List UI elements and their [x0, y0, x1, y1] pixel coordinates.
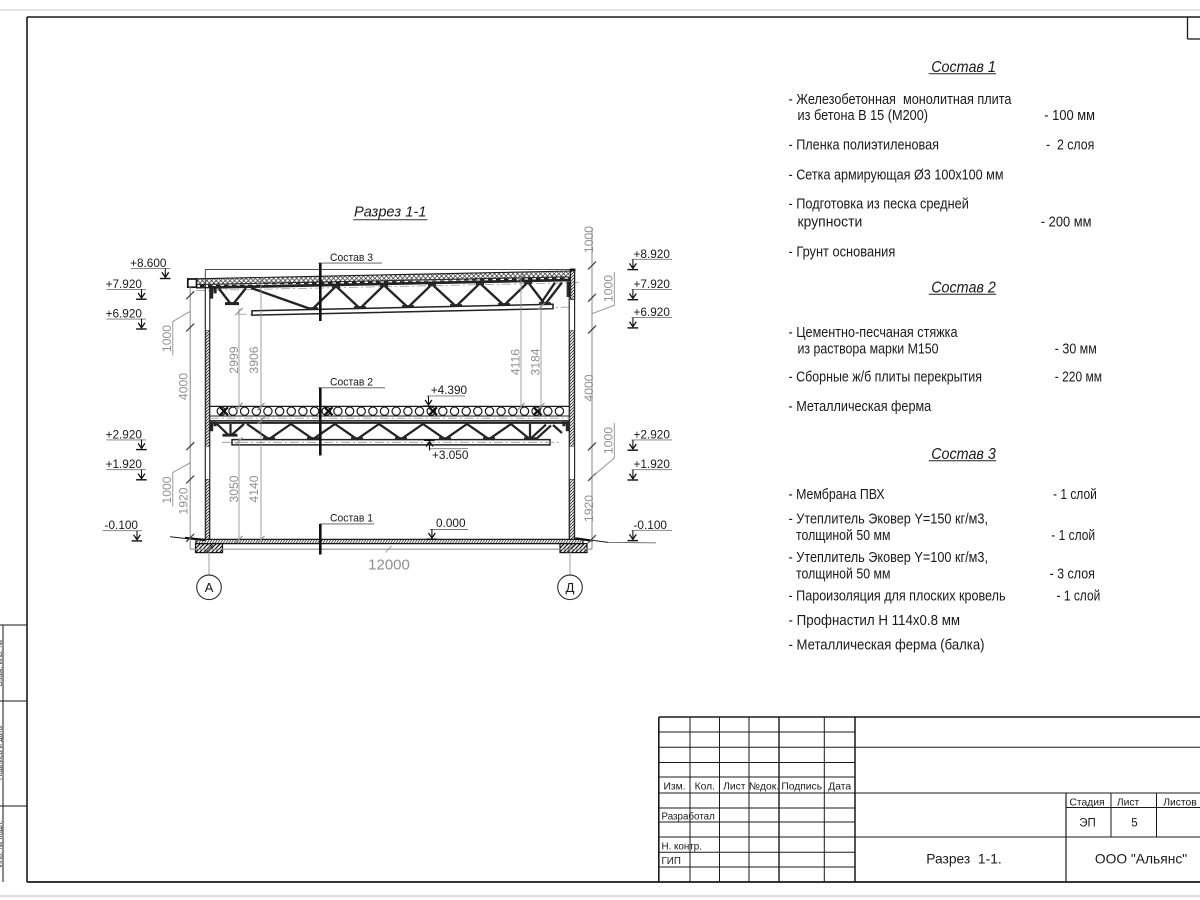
svg-text:Д: Д: [566, 580, 575, 595]
svg-text:0.000: 0.000: [436, 516, 466, 530]
svg-text:Разрез 1-1.: Разрез 1-1.: [926, 852, 1001, 867]
svg-text:- Сетка армирующая Ø3 100х100: - Сетка армирующая Ø3 100х100 мм: [789, 166, 1004, 183]
svg-text:1000: 1000: [582, 226, 596, 253]
svg-text:4116: 4116: [508, 349, 522, 375]
svg-text:- 200 мм: - 200 мм: [1041, 214, 1092, 231]
svg-text:Изм.: Изм.: [663, 781, 685, 792]
svg-text:- Мембрана ПВХ: - Мембрана ПВХ: [789, 486, 885, 503]
svg-text:Кол.: Кол.: [695, 781, 715, 792]
svg-text:- Сборные ж/б плиты перекрытия: - Сборные ж/б плиты перекрытия: [789, 368, 983, 385]
svg-text:- Утеплитель Эковер Y=150 кг/м: - Утеплитель Эковер Y=150 кг/м3,: [789, 510, 989, 527]
svg-text:- 1 слой: - 1 слой: [1051, 527, 1095, 544]
svg-text:+8.920: +8.920: [634, 247, 671, 261]
svg-text:1000: 1000: [160, 476, 174, 503]
svg-text:-0.100: -0.100: [105, 518, 139, 532]
svg-text:+7.920: +7.920: [634, 277, 671, 291]
svg-text:Стадия: Стадия: [1069, 797, 1104, 808]
svg-text:4140: 4140: [247, 475, 261, 502]
svg-text:+3.050: +3.050: [432, 448, 469, 462]
svg-text:ЭП: ЭП: [1079, 818, 1096, 830]
svg-text:Дата: Дата: [828, 781, 851, 792]
svg-text:1000: 1000: [160, 325, 174, 352]
svg-text:- 1 слой: - 1 слой: [1057, 587, 1101, 604]
svg-text:Состав 3: Состав 3: [330, 252, 373, 264]
svg-text:Лист: Лист: [1117, 797, 1140, 808]
svg-text:- 220 мм: - 220 мм: [1055, 368, 1102, 385]
svg-text:- Цементно-песчаная стяжка: - Цементно-песчаная стяжка: [789, 324, 958, 341]
svg-text:3184: 3184: [528, 348, 542, 375]
svg-text:+6.920: +6.920: [634, 305, 671, 319]
svg-text:из бетона В 15 (М200): из бетона В 15 (М200): [798, 107, 929, 124]
svg-text:толщиной 50 мм: толщиной 50 мм: [796, 565, 891, 582]
svg-text:+6.920: +6.920: [106, 307, 143, 321]
svg-text:Разрез 1-1: Разрез 1-1: [354, 205, 426, 221]
svg-text:- Профнастил Н 114х0.8 мм: - Профнастил Н 114х0.8 мм: [789, 612, 961, 629]
svg-text:+8.600: +8.600: [130, 256, 167, 270]
svg-text:- 30 мм: - 30 мм: [1055, 340, 1097, 357]
svg-text:-0.100: -0.100: [634, 518, 668, 532]
svg-text:1920: 1920: [582, 495, 596, 522]
svg-text:4000: 4000: [176, 373, 190, 400]
svg-text:- 1 слой: - 1 слой: [1053, 486, 1097, 503]
svg-text:Состав 2: Состав 2: [330, 377, 373, 389]
svg-text:Н. контр.: Н. контр.: [662, 841, 702, 852]
svg-text:А: А: [205, 580, 214, 595]
svg-text:5: 5: [1131, 818, 1137, 830]
svg-text:+1.920: +1.920: [106, 457, 143, 471]
svg-text:- Пленка полиэтиленовая: - Пленка полиэтиленовая: [789, 137, 940, 154]
svg-text:- Железобетонная монолитная п: - Железобетонная монолитная плита: [789, 91, 1012, 108]
svg-text:12000: 12000: [368, 557, 410, 574]
svg-text:- 3 слоя: - 3 слоя: [1050, 565, 1095, 582]
svg-text:Подпись и дата: Подпись и дата: [0, 725, 4, 780]
svg-text:ГИП: ГИП: [662, 856, 681, 867]
svg-text:Состав 1: Состав 1: [330, 513, 373, 525]
svg-text:ООО "Альянс": ООО "Альянс": [1095, 852, 1187, 867]
svg-text:- Подготовка из песка средней: - Подготовка из песка средней: [789, 195, 969, 212]
svg-text:+2.920: +2.920: [634, 427, 671, 441]
svg-text:- Пароизоляция для плоских кро: - Пароизоляция для плоских кровель: [789, 587, 1006, 604]
svg-text:+7.920: +7.920: [106, 277, 143, 291]
svg-text:3050: 3050: [227, 475, 241, 502]
svg-text:Подпись: Подпись: [781, 781, 822, 792]
svg-text:- Металлическая ферма (балка): - Металлическая ферма (балка): [789, 636, 985, 653]
svg-text:+4.390: +4.390: [431, 383, 468, 397]
svg-text:2999: 2999: [227, 346, 241, 373]
svg-text:- Утеплитель Эковер Y=100 кг/м: - Утеплитель Эковер Y=100 кг/м3,: [789, 549, 989, 566]
svg-text:1000: 1000: [601, 427, 615, 454]
svg-text:- Металлическая ферма: - Металлическая ферма: [789, 398, 932, 415]
svg-text:Разработал: Разработал: [662, 812, 716, 823]
svg-text:1920: 1920: [176, 487, 190, 514]
svg-text:Листов: Листов: [1163, 797, 1197, 808]
svg-text:+1.920: +1.920: [634, 457, 671, 471]
svg-text:+2.920: +2.920: [106, 427, 143, 441]
svg-text:4000: 4000: [582, 374, 596, 401]
svg-text:3906: 3906: [247, 346, 261, 373]
svg-text:из раствора марки М150: из раствора марки М150: [798, 340, 939, 357]
svg-text:- Грунт основания: - Грунт основания: [789, 243, 896, 260]
svg-text:Инв. № подл.: Инв. № подл.: [0, 821, 4, 868]
svg-text:толщиной 50 мм: толщиной 50 мм: [796, 527, 891, 544]
svg-text:Взам. инв. №: Взам. инв. №: [0, 640, 4, 686]
svg-text:1000: 1000: [601, 275, 615, 302]
svg-text:- 100 мм: - 100 мм: [1044, 107, 1095, 124]
svg-text:№док.: №док.: [749, 781, 779, 792]
svg-text:- 2 слоя: - 2 слоя: [1046, 137, 1094, 154]
svg-text:Лист: Лист: [723, 781, 746, 792]
svg-text:крупности: крупности: [798, 214, 863, 231]
